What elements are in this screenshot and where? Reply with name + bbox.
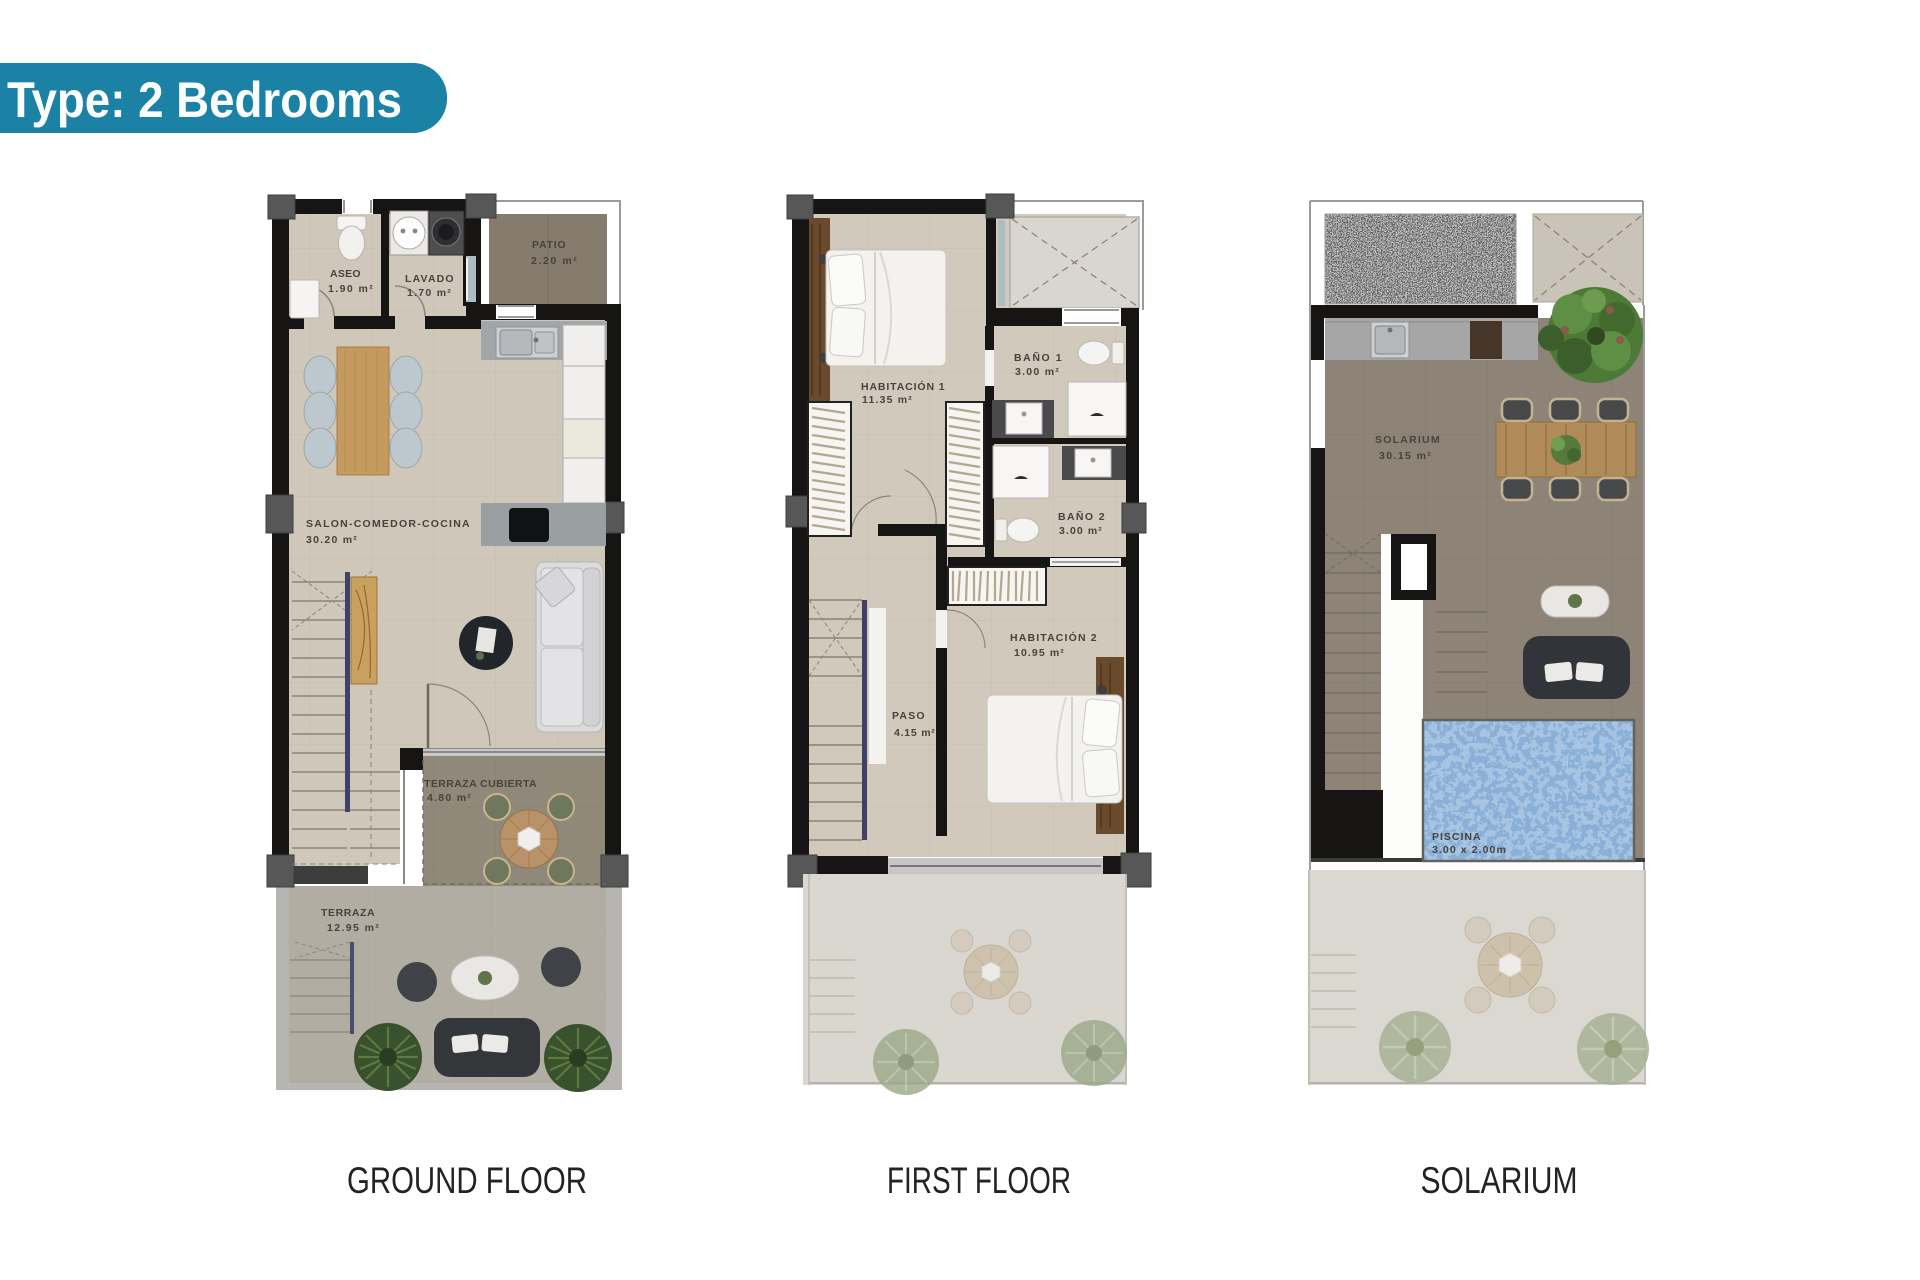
svg-text:TERRAZA: TERRAZA <box>321 907 375 919</box>
svg-text:SOLARIUM: SOLARIUM <box>1375 434 1440 446</box>
svg-text:TERRAZA CUBIERTA: TERRAZA CUBIERTA <box>424 778 537 790</box>
svg-text:10.95 m²: 10.95 m² <box>1014 647 1064 659</box>
svg-text:BAÑO 1: BAÑO 1 <box>1014 351 1062 364</box>
svg-text:12.95 m²: 12.95 m² <box>327 922 379 934</box>
svg-text:BAÑO 2: BAÑO 2 <box>1058 510 1105 523</box>
svg-text:30.20 m²: 30.20 m² <box>306 534 357 546</box>
svg-text:4.15 m²: 4.15 m² <box>894 727 935 739</box>
svg-text:SOLARIUM: SOLARIUM <box>1421 1160 1578 1201</box>
svg-text:Type: 2 Bedrooms: Type: 2 Bedrooms <box>7 72 402 128</box>
svg-text:PASO: PASO <box>892 710 925 722</box>
svg-text:LAVADO: LAVADO <box>405 273 454 285</box>
svg-text:3.00 x 2.00m: 3.00 x 2.00m <box>1432 844 1506 856</box>
svg-text:HABITACIÓN 1: HABITACIÓN 1 <box>861 380 945 393</box>
svg-text:1.70 m²: 1.70 m² <box>407 287 451 299</box>
svg-text:PATIO: PATIO <box>532 239 566 251</box>
svg-text:3.00 m²: 3.00 m² <box>1059 525 1102 537</box>
svg-text:3.00 m²: 3.00 m² <box>1015 366 1059 378</box>
svg-text:11.35 m²: 11.35 m² <box>862 394 912 406</box>
svg-text:2.20 m²: 2.20 m² <box>531 255 577 267</box>
svg-text:PISCINA: PISCINA <box>1432 831 1481 843</box>
svg-text:SALON-COMEDOR-COCINA: SALON-COMEDOR-COCINA <box>306 518 470 530</box>
svg-text:ASEO: ASEO <box>330 268 361 280</box>
svg-text:30.15 m²: 30.15 m² <box>1379 450 1431 462</box>
svg-text:GROUND FLOOR: GROUND FLOOR <box>347 1160 587 1201</box>
svg-text:FIRST FLOOR: FIRST FLOOR <box>887 1160 1071 1201</box>
svg-text:1.90 m²: 1.90 m² <box>328 283 373 295</box>
svg-text:4.80 m²: 4.80 m² <box>427 792 471 804</box>
svg-text:HABITACIÓN 2: HABITACIÓN 2 <box>1010 631 1097 644</box>
